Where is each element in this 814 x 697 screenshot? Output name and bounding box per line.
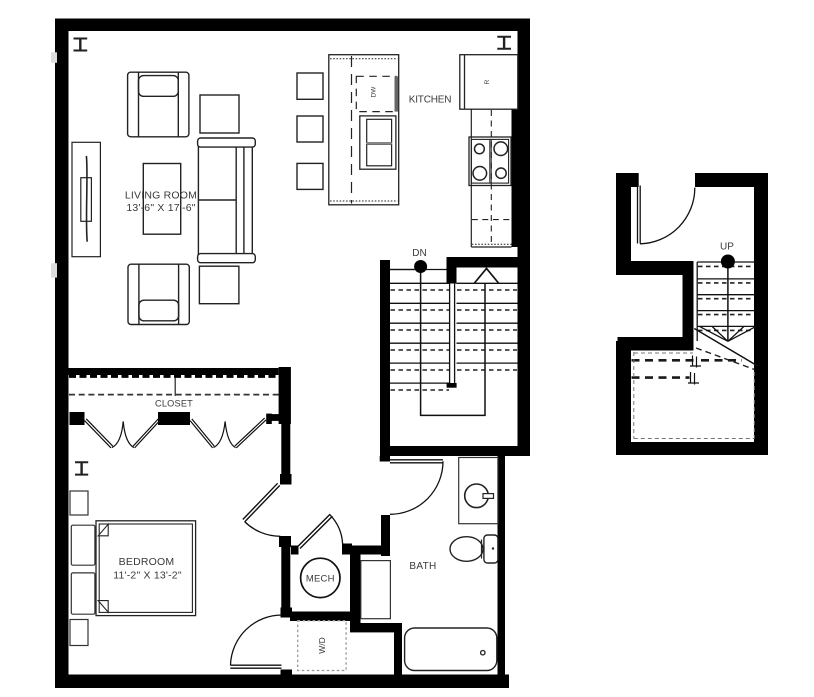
svg-text:DW: DW [371,86,378,98]
svg-text:13'-6" X 17'-6": 13'-6" X 17'-6" [126,202,195,214]
svg-text:BATH: BATH [409,561,436,572]
svg-text:KITCHEN: KITCHEN [409,95,452,106]
svg-text:LIVING ROOM: LIVING ROOM [125,189,197,201]
svg-text:UP: UP [720,242,734,253]
svg-text:MECH: MECH [306,574,335,585]
svg-text:BEDROOM: BEDROOM [119,556,175,568]
svg-text:W/D: W/D [317,637,327,654]
svg-text:DN: DN [412,248,426,259]
svg-text:CLOSET: CLOSET [155,399,193,409]
svg-text:11'-2" X 13'-2": 11'-2" X 13'-2" [113,569,182,581]
svg-text:R: R [484,79,491,84]
